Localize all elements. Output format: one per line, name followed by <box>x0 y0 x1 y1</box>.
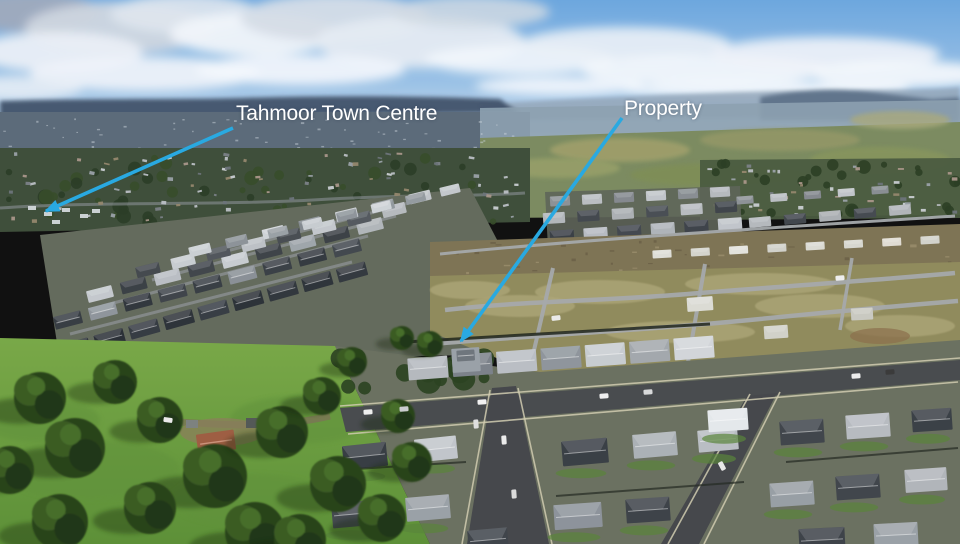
property-label: Property <box>624 97 702 120</box>
town-centre-label: Tahmoor Town Centre <box>236 102 437 125</box>
aerial-photo: Tahmoor Town Centre Property <box>0 0 960 544</box>
aerial-photo-scene <box>0 0 960 544</box>
